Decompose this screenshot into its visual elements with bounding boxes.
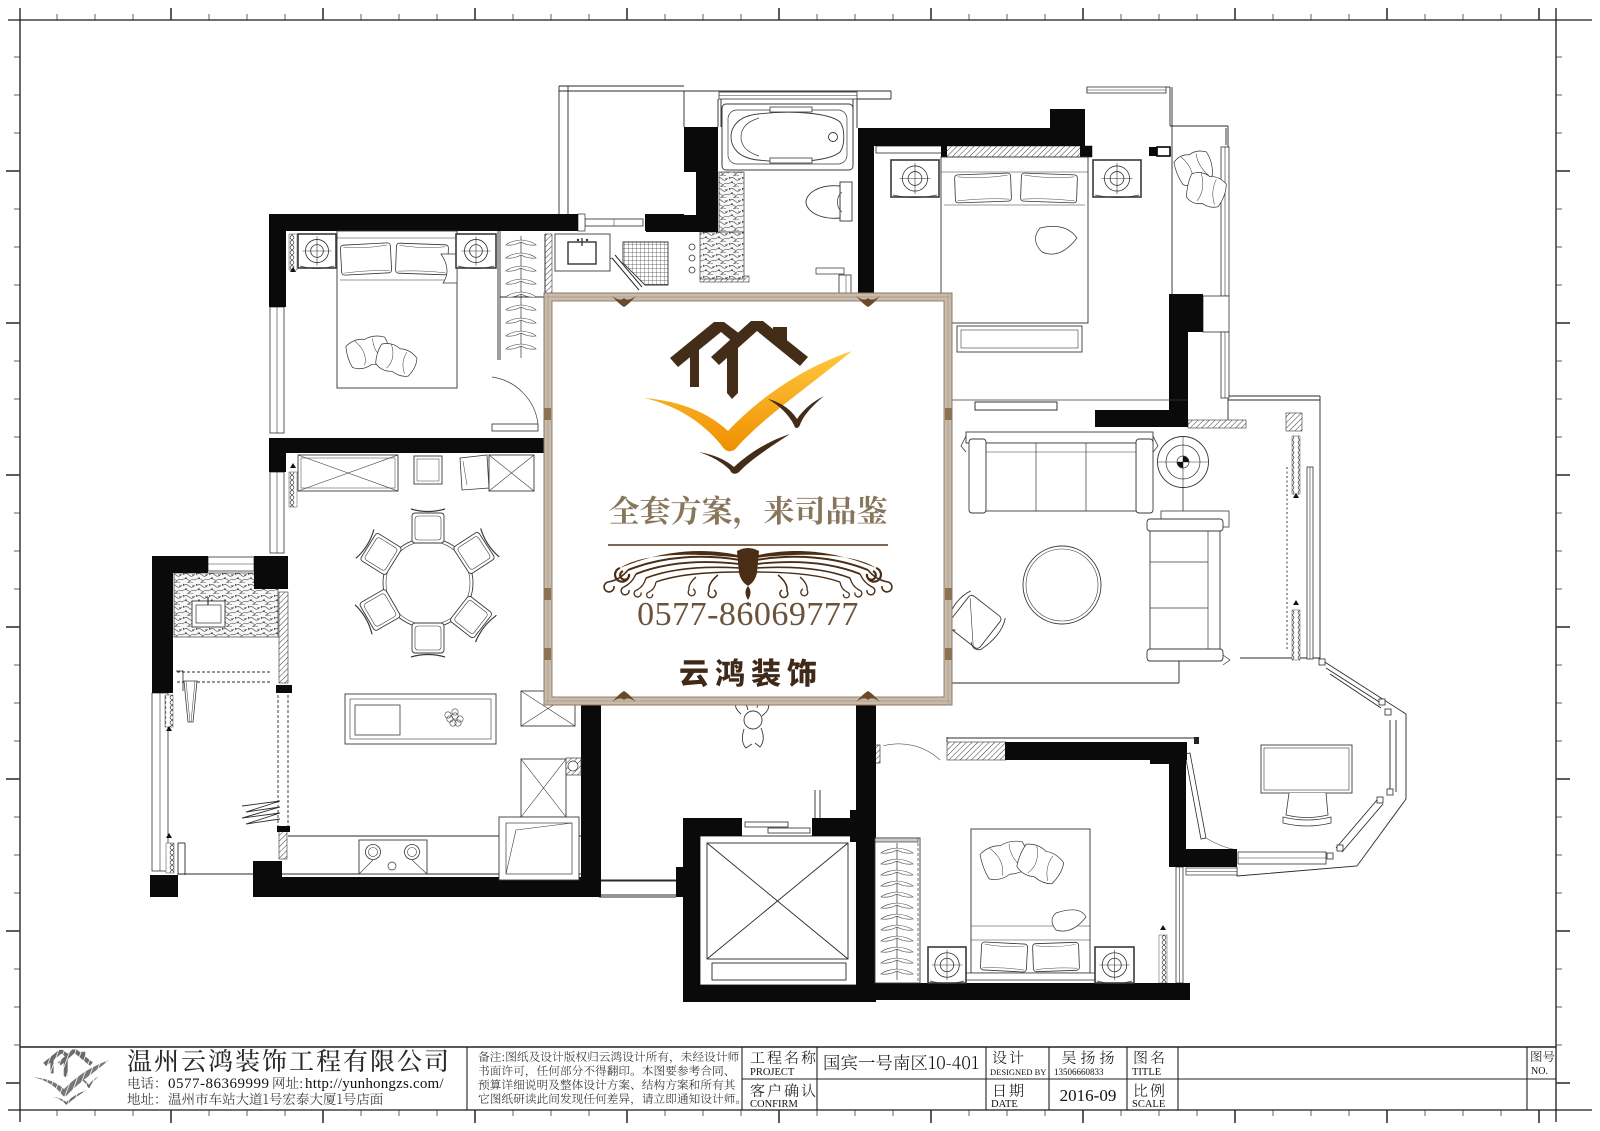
- svg-text:SCALE: SCALE: [1132, 1099, 1165, 1110]
- svg-text:0577-86369999: 0577-86369999: [168, 1076, 270, 1092]
- svg-text:NO.: NO.: [1531, 1066, 1548, 1077]
- svg-text:PROJECT: PROJECT: [750, 1067, 795, 1078]
- svg-text:TITLE: TITLE: [1132, 1067, 1161, 1078]
- svg-text:DATE: DATE: [991, 1099, 1018, 1110]
- svg-text:DESIGNED BY: DESIGNED BY: [990, 1067, 1046, 1077]
- svg-text:13506660833: 13506660833: [1054, 1067, 1104, 1077]
- svg-text:2016-09: 2016-09: [1060, 1086, 1117, 1105]
- svg-text:CONFIRM: CONFIRM: [750, 1099, 799, 1110]
- svg-text:http://yunhongzs.com/: http://yunhongzs.com/: [305, 1076, 444, 1092]
- svg-text:0577-86069777: 0577-86069777: [637, 596, 859, 633]
